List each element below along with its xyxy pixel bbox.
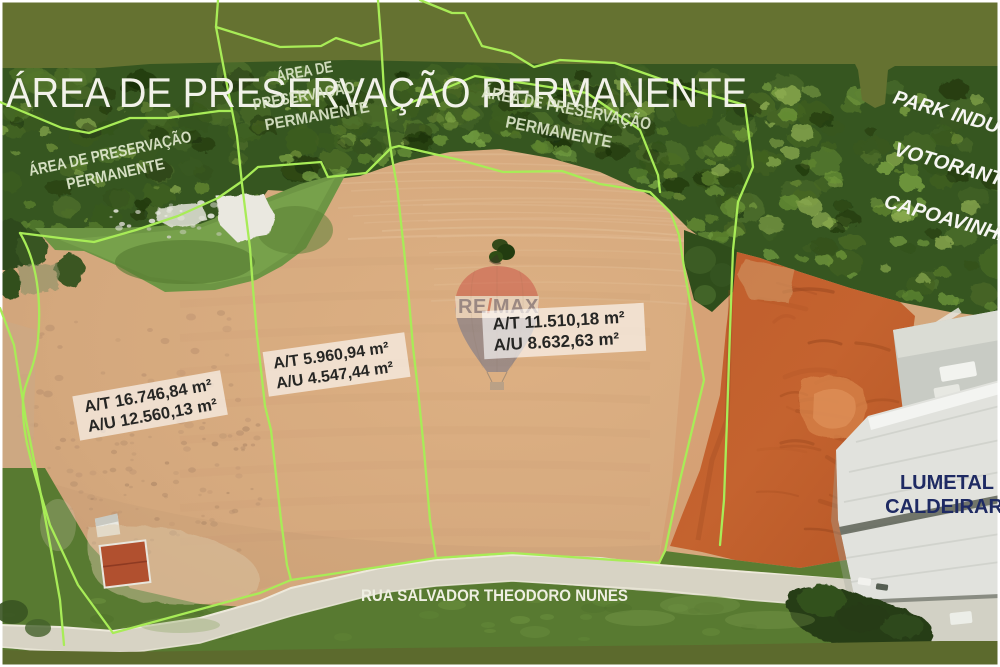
svg-text:ÁREA DE PRESERVAÇÃO PERMANENTE: ÁREA DE PRESERVAÇÃO PERMANENTE xyxy=(6,69,747,116)
svg-text:RUA SALVADOR THEODORO NUNES: RUA SALVADOR THEODORO NUNES xyxy=(361,586,628,605)
svg-text:CALDEIRAR: CALDEIRAR xyxy=(885,496,1000,518)
svg-text:LUMETAL: LUMETAL xyxy=(900,472,994,494)
